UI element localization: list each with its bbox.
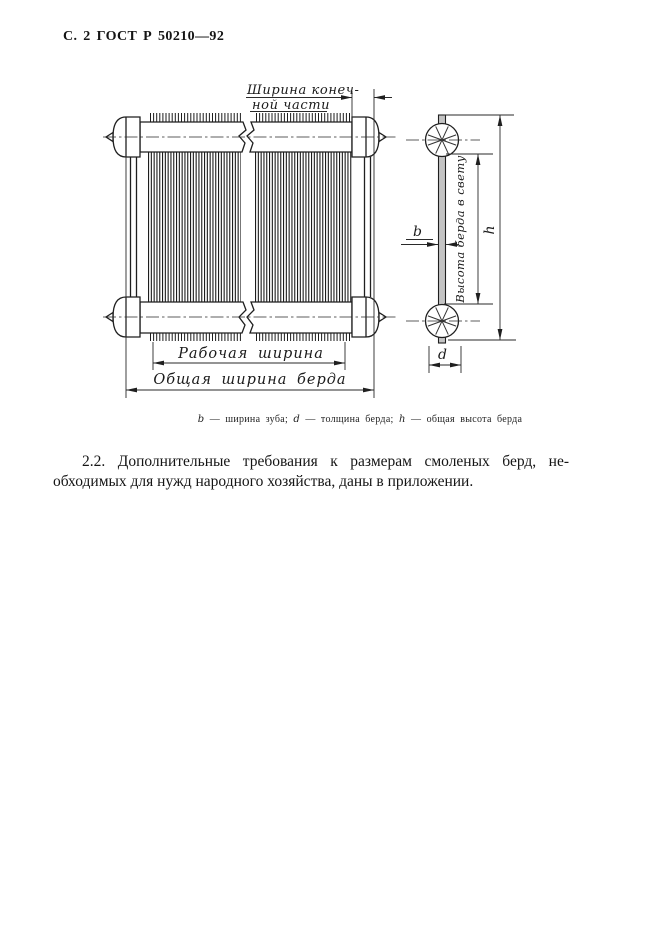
- dim-working-width: Рабочая ширина: [153, 342, 345, 370]
- d-label: d: [438, 347, 447, 363]
- caption-desc-b: — ширина зуба;: [204, 414, 293, 425]
- h-label: h: [482, 225, 498, 234]
- end-width-label-line2: ной части: [252, 98, 330, 113]
- figure-caption: b — ширина зуба; d — толщина берда; h — …: [100, 414, 620, 425]
- document-page: С. 2 ГОСТ Р 50210—92: [0, 0, 661, 936]
- working-width-label: Рабочая ширина: [177, 346, 324, 362]
- bottom-rail: [140, 302, 352, 333]
- overall-width-label: Общая ширина берда: [153, 372, 346, 388]
- b-label: b: [413, 224, 422, 240]
- caption-desc-h: — общая высота берда: [406, 414, 523, 425]
- clear-height-label: Высота берда в свету: [453, 155, 467, 303]
- clause-2-2: 2.2. Дополнительные требования к размера…: [53, 452, 569, 491]
- dim-d: d: [429, 346, 461, 373]
- caption-desc-d: — толщина берда;: [300, 414, 399, 425]
- centerlines-front: [103, 137, 398, 317]
- clause-2-2-line2: обходимых для нужд народного хозяйства, …: [53, 472, 569, 492]
- clause-2-2-line1: 2.2. Дополнительные требования к размера…: [53, 452, 569, 472]
- dim-b: b: [401, 224, 459, 247]
- reed-technical-drawing: Ширина конеч- ной части Рабочая ширина О…: [0, 0, 661, 444]
- front-view: [103, 117, 398, 337]
- caption-sym-h: h: [399, 414, 406, 425]
